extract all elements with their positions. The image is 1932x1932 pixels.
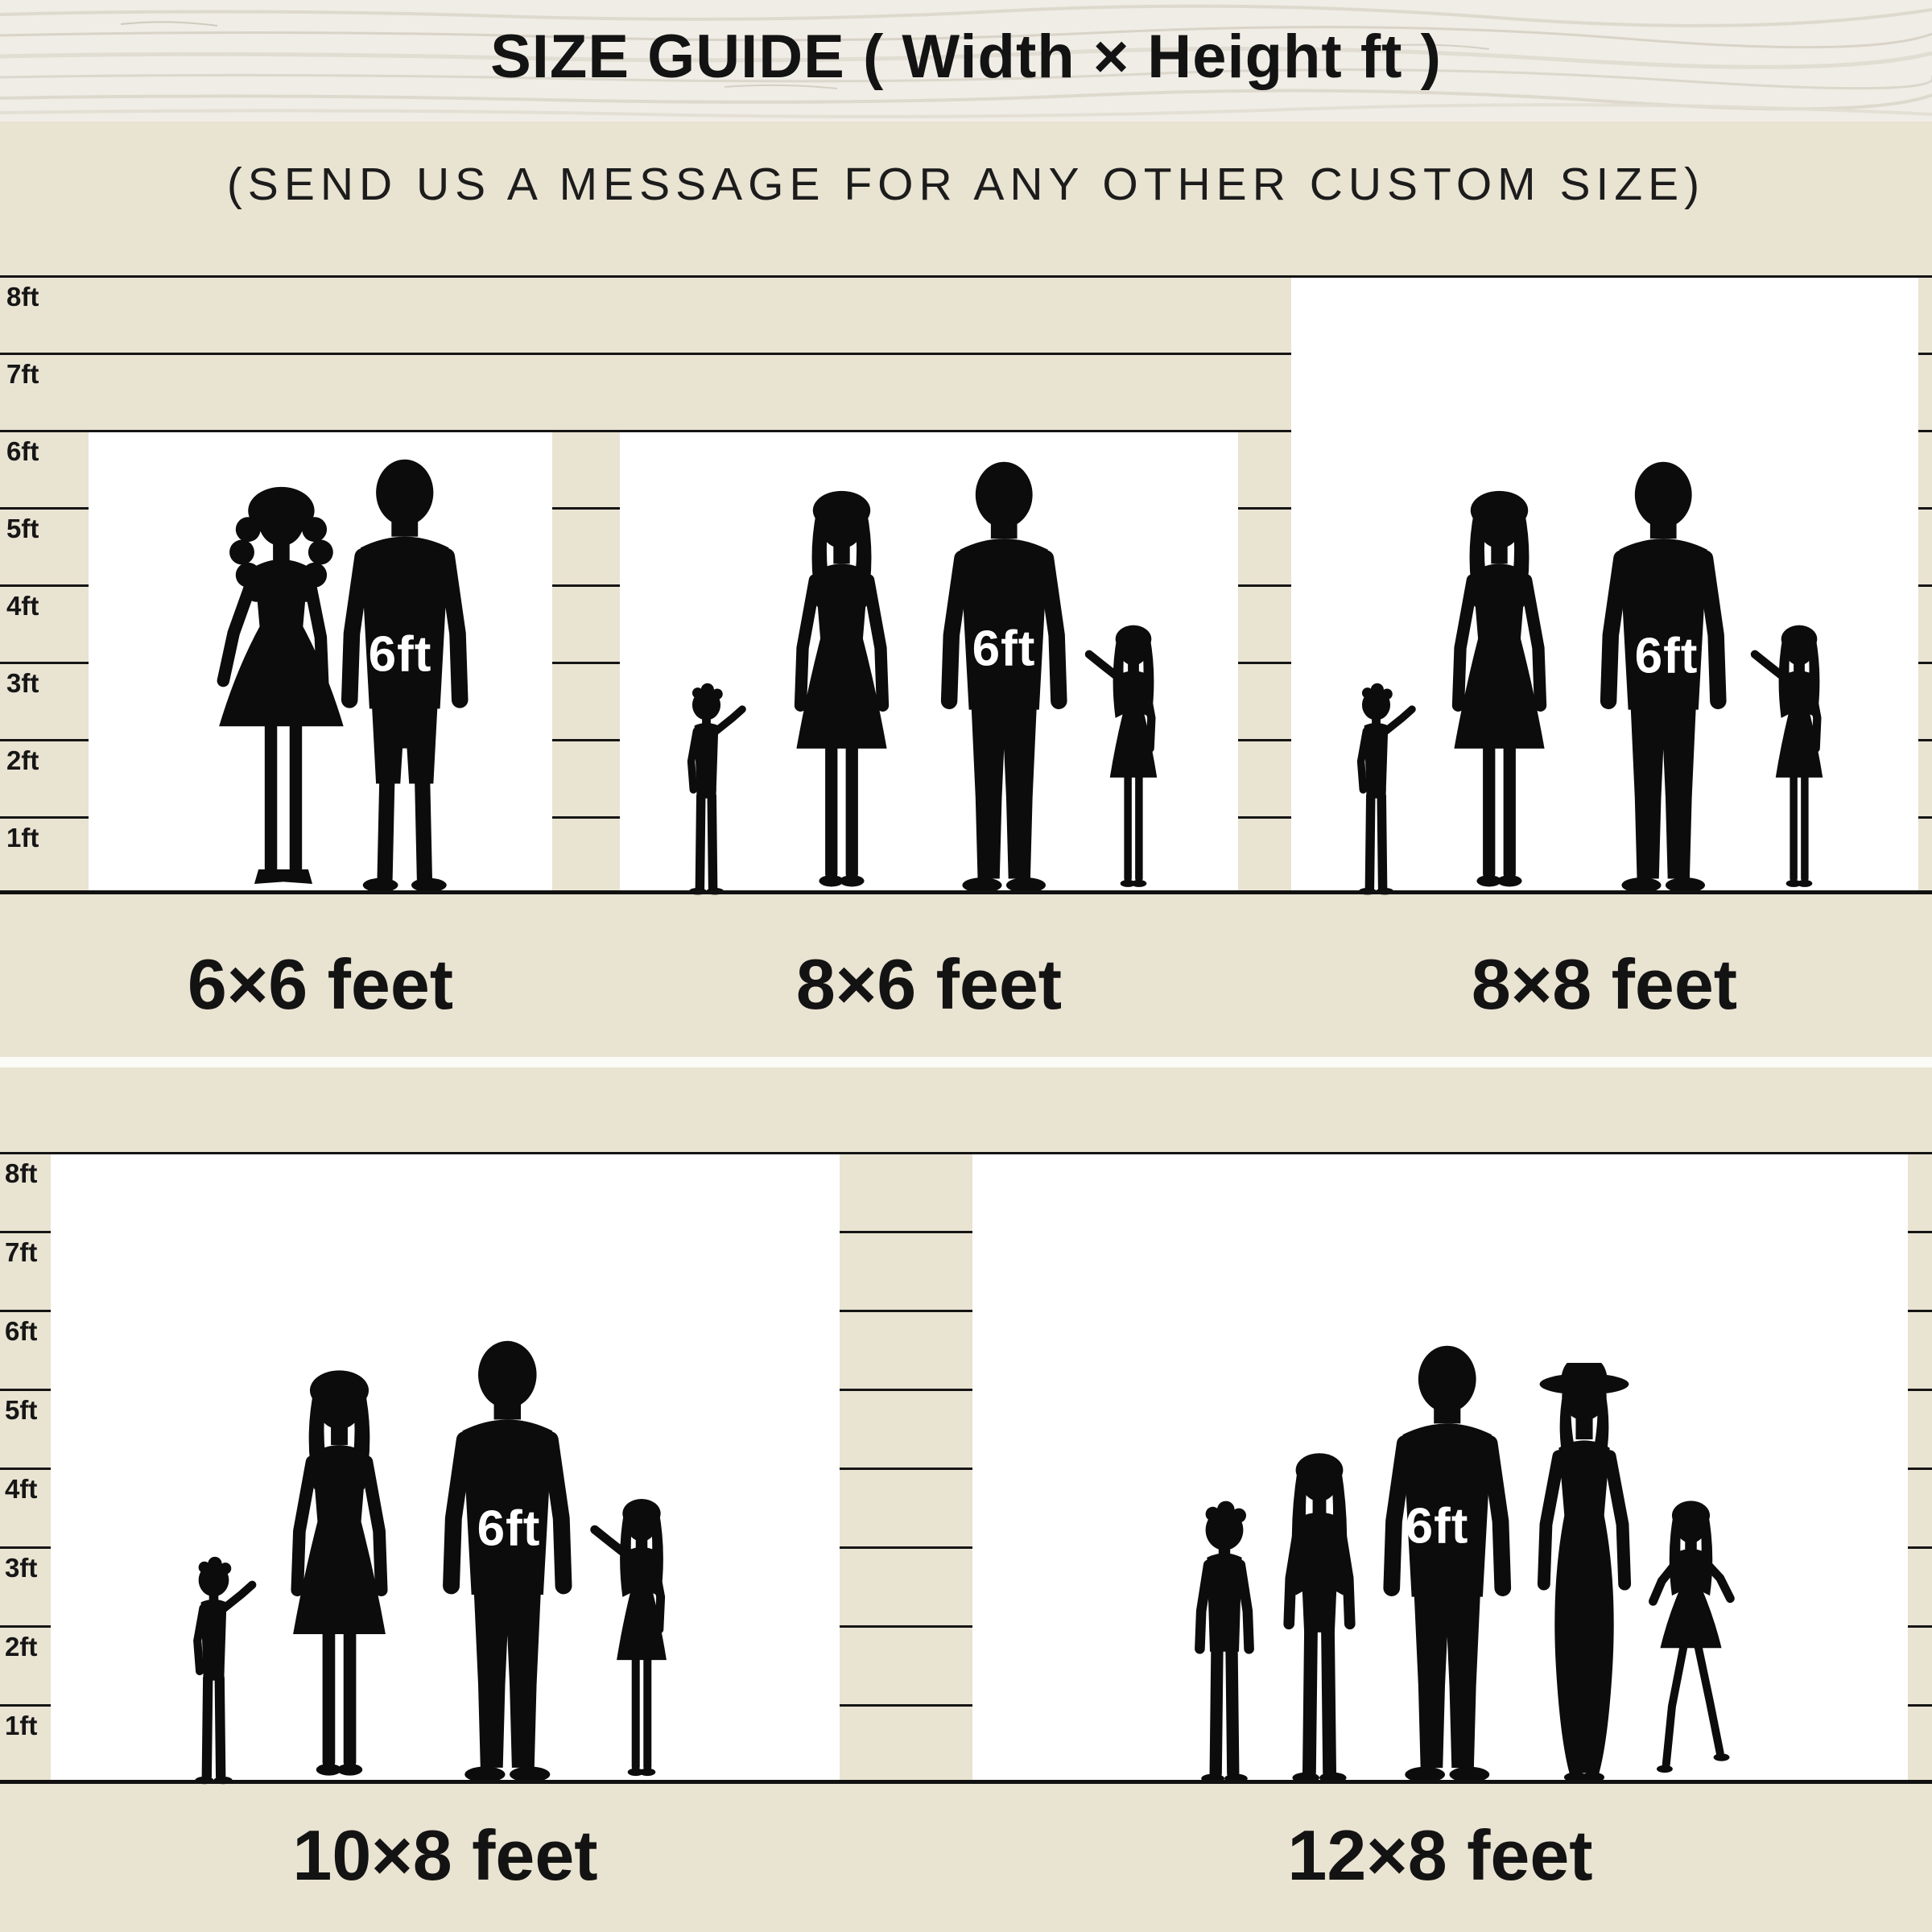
- ruler-tick-row1-2ft: 2ft: [6, 747, 39, 774]
- ruler-tick-row2-8ft: 8ft: [5, 1160, 37, 1187]
- ruler-tick-row2-4ft: 4ft: [5, 1476, 37, 1502]
- ruler-tick-row2-2ft: 2ft: [5, 1633, 37, 1660]
- ruler-tick-row1-7ft: 7ft: [6, 361, 39, 387]
- floor-line-row2: [0, 1780, 1932, 1784]
- height-marker: 6ft: [477, 1501, 541, 1558]
- ruler-tick-row1-5ft: 5ft: [6, 515, 39, 542]
- height-marker: 6ft: [1406, 1498, 1469, 1555]
- size-panel-8x6: 6ft: [620, 430, 1238, 894]
- size-panel-10x8: 6ft: [51, 1152, 840, 1783]
- ruler-tick-row2-5ft: 5ft: [5, 1397, 37, 1423]
- size-label-8x6: 8×6 feet: [796, 943, 1062, 1026]
- height-marker: 6ft: [369, 626, 432, 683]
- size-label-6x6: 6×6 feet: [188, 943, 453, 1026]
- family-silhouette-five: [972, 1154, 1908, 1785]
- ruler-tick-row2-1ft: 1ft: [5, 1712, 37, 1739]
- section-divider: [0, 1057, 1932, 1067]
- family-silhouette-couple: [89, 432, 552, 896]
- ruler-tick-row1-4ft: 4ft: [6, 592, 39, 619]
- custom-size-note: (SEND US A MESSAGE FOR ANY OTHER CUSTOM …: [0, 158, 1932, 211]
- ruler-tick-row1-1ft: 1ft: [6, 824, 39, 851]
- header-wood-banner: SIZE GUIDE ( Width × Height ft ): [0, 0, 1932, 122]
- ruler-tick-row1-3ft: 3ft: [6, 670, 39, 696]
- ruler-tick-row1-8ft: 8ft: [6, 283, 39, 310]
- ruler-tick-row2-7ft: 7ft: [5, 1239, 37, 1265]
- size-label-12x8: 12×8 feet: [1287, 1814, 1592, 1897]
- size-panel-8x8: 6ft: [1291, 275, 1918, 894]
- size-label-10x8: 10×8 feet: [292, 1814, 597, 1897]
- size-guide-title: SIZE GUIDE ( Width × Height ft ): [0, 0, 1932, 113]
- floor-line-row1: [0, 890, 1932, 894]
- size-panel-12x8: 6ft: [972, 1152, 1908, 1783]
- family-silhouette-four: [1291, 278, 1918, 896]
- ruler-tick-row1-6ft: 6ft: [6, 438, 39, 464]
- size-label-8x8: 8×8 feet: [1472, 943, 1737, 1026]
- family-silhouette-four: [51, 1154, 840, 1785]
- ruler-tick-row2-3ft: 3ft: [5, 1554, 37, 1581]
- height-marker: 6ft: [972, 621, 1036, 678]
- family-silhouette-four: [620, 432, 1238, 896]
- ruler-tick-row2-6ft: 6ft: [5, 1318, 37, 1344]
- height-marker: 6ft: [1635, 628, 1699, 685]
- size-panel-6x6: 6ft: [89, 430, 552, 894]
